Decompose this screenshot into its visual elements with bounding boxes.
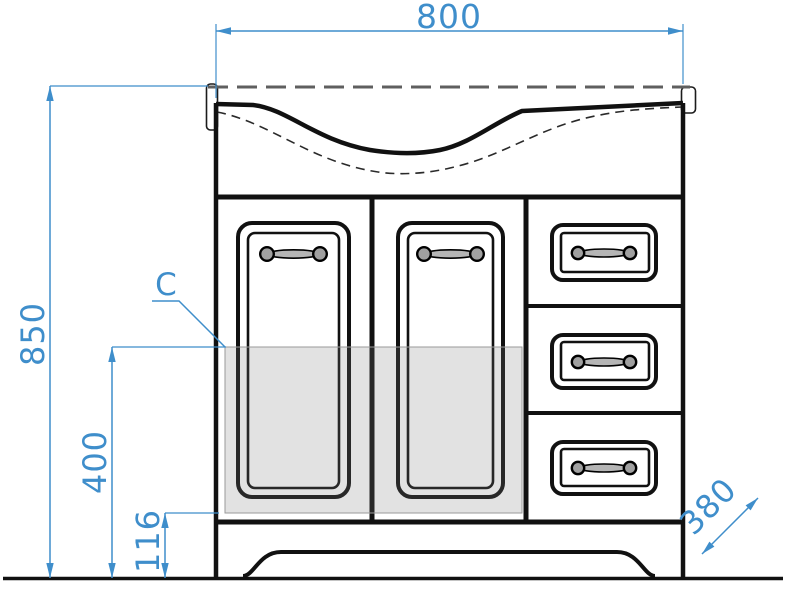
dimension-plinth-116: 116 bbox=[129, 509, 219, 578]
drawer-1 bbox=[552, 225, 656, 280]
drawer-1-handle-icon bbox=[572, 247, 636, 259]
drawer-3-handle-icon bbox=[572, 462, 636, 474]
plinth-kick-profile bbox=[243, 552, 655, 576]
vanity-elevation-drawing: 800 850 400 116 380 C bbox=[0, 0, 785, 609]
dimension-width-value: 800 bbox=[416, 0, 482, 36]
zone-c-shaded-region bbox=[225, 347, 522, 513]
countertop-basin bbox=[207, 84, 696, 174]
zone-c-label: C bbox=[155, 267, 177, 303]
basin-front-edge bbox=[216, 103, 683, 153]
technical-drawing-canvas: 800 850 400 116 380 C bbox=[0, 0, 785, 609]
dimension-plinth-value: 116 bbox=[129, 509, 167, 573]
dimension-width-800: 800 bbox=[216, 0, 683, 98]
drawer-3 bbox=[552, 442, 656, 494]
dimension-height-850: 850 bbox=[14, 86, 208, 578]
dimension-height-value: 850 bbox=[14, 302, 52, 366]
door-left-handle-icon bbox=[260, 247, 327, 261]
drawer-2 bbox=[552, 335, 656, 388]
door-right-handle-icon bbox=[417, 247, 484, 261]
dimension-zone-value: 400 bbox=[76, 430, 114, 494]
drawer-2-handle-icon bbox=[572, 356, 636, 368]
